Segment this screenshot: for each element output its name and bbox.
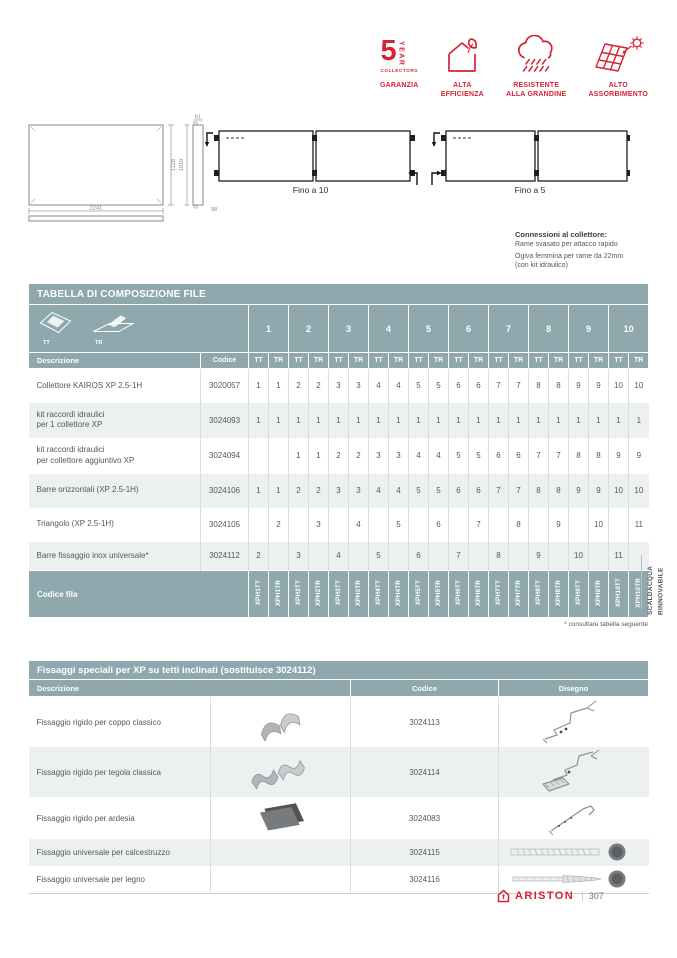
row-code-cell: XPH10TT xyxy=(609,571,629,618)
value-cell: 8 xyxy=(529,369,549,403)
value-cell: 4 xyxy=(329,542,349,571)
value-cell: 1 xyxy=(269,403,289,438)
row-code-text: XPH3TR xyxy=(355,580,362,606)
description-cell: Fissaggio universale per calcestruzzo xyxy=(29,839,211,866)
code-cell: 3024094 xyxy=(201,438,249,474)
row-code-text: XPH6TT xyxy=(455,580,462,605)
special-fixings-table: Fissaggi speciali per XP su tetti inclin… xyxy=(28,660,649,894)
value-cell: 10 xyxy=(609,474,629,508)
tt-subheader: TT xyxy=(289,353,309,369)
house-leaf-icon xyxy=(445,34,479,78)
value-cell xyxy=(549,542,569,571)
value-cell: 1 xyxy=(549,403,569,438)
dim-width: 2241 xyxy=(90,206,102,212)
row-code-text: XPH4TR xyxy=(395,580,402,606)
row-code-cell: XPH9TT xyxy=(569,571,589,618)
value-cell: 8 xyxy=(529,474,549,508)
side-label-text: SCALDACQUA RINNOVABILE xyxy=(646,555,667,615)
row-code-cell: XPH3TT xyxy=(329,571,349,618)
value-cell: 2 xyxy=(289,369,309,403)
table-row: Fissaggio rigido per coppo classico30241… xyxy=(29,697,649,748)
value-cell: 6 xyxy=(509,438,529,474)
value-cell xyxy=(569,508,589,542)
value-cell: 1 xyxy=(249,403,269,438)
tt-label: TT xyxy=(43,340,50,346)
value-cell: 3 xyxy=(289,542,309,571)
coppo-clamp-photo xyxy=(211,697,351,748)
value-cell xyxy=(309,542,329,571)
column-group-header: 6 xyxy=(449,305,489,353)
value-cell: 3 xyxy=(309,508,329,542)
column-group-header: 9 xyxy=(569,305,609,353)
column-group-header: 3 xyxy=(329,305,369,353)
value-cell: 1 xyxy=(269,369,289,403)
value-cell: 1 xyxy=(289,438,309,474)
value-cell: 1 xyxy=(309,438,329,474)
code-cell: 3024083 xyxy=(351,797,499,839)
value-cell: 10 xyxy=(629,474,649,508)
coppo-bracket-drawing xyxy=(499,697,649,748)
caption-fino-a-5: Fino a 5 xyxy=(430,185,630,195)
column-group-header: 4 xyxy=(369,305,409,353)
code-cell: 3024113 xyxy=(351,697,499,748)
table-row: Barre fissaggio inox universale*30241122… xyxy=(29,542,649,571)
description-cell: Fissaggio universale per legno xyxy=(29,866,211,894)
value-cell: 8 xyxy=(489,542,509,571)
value-cell: 1 xyxy=(409,403,429,438)
value-cell: 10 xyxy=(569,542,589,571)
brand-name: ARISTON xyxy=(515,890,574,902)
value-cell xyxy=(469,542,489,571)
row-code-text: XPH2TT xyxy=(295,580,302,605)
row-code-cell: XPH1TT xyxy=(249,571,269,618)
row-code-text: XPH8TR xyxy=(555,580,562,606)
collectors-text: COLLECTORS xyxy=(380,68,418,73)
value-cell: 5 xyxy=(449,438,469,474)
value-cell xyxy=(589,542,609,571)
tt-subheader: TT xyxy=(409,353,429,369)
table-row: Barre orizzontali (XP 2.5-1H)30241061122… xyxy=(29,474,649,508)
value-cell: 3 xyxy=(349,369,369,403)
absorption-badge: ALTO ASSORBIMENTO xyxy=(589,34,648,100)
row-code-text: XPH7TT xyxy=(495,580,502,605)
tr-flat-icon xyxy=(91,311,135,339)
value-cell: 1 xyxy=(249,474,269,508)
value-cell: 6 xyxy=(469,474,489,508)
value-cell: 4 xyxy=(389,369,409,403)
column-group-header: 1 xyxy=(249,305,289,353)
value-cell: 9 xyxy=(609,438,629,474)
tt-subheader: TT xyxy=(569,353,589,369)
row-code-row: Codice filaXPH1TTXPH1TRXPH2TTXPH2TRXPH3T… xyxy=(29,571,649,618)
value-cell: 7 xyxy=(549,438,569,474)
tt-subheader: TT xyxy=(489,353,509,369)
description-cell: kit raccordi idraulici per collettore ag… xyxy=(29,438,201,474)
row-code-text: XPH4TT xyxy=(375,580,382,605)
tt-subheader: TT xyxy=(369,353,389,369)
code-cell: 3024093 xyxy=(201,403,249,438)
five-number: 5 xyxy=(380,39,396,64)
column-group-header: 10 xyxy=(609,305,649,353)
photo-cell-empty xyxy=(211,839,351,866)
tt-subheader: TT xyxy=(609,353,629,369)
code-cell: 3024112 xyxy=(201,542,249,571)
value-cell: 9 xyxy=(629,438,649,474)
code-cell: 3024115 xyxy=(351,839,499,866)
table-row: Fissaggio rigido per tegola classica3024… xyxy=(29,747,649,797)
row-code-text: XPH1TR xyxy=(275,580,282,606)
value-cell: 6 xyxy=(429,508,449,542)
value-cell: 1 xyxy=(369,403,389,438)
row-code-text: XPH1TT xyxy=(255,580,262,605)
efficiency-badge: ALTA EFFICIENZA xyxy=(441,34,484,100)
connections-title: Connessioni al collettore: xyxy=(515,230,655,239)
value-cell: 9 xyxy=(589,474,609,508)
row-code-text: XPH7TR xyxy=(515,580,522,606)
ardesia-hook-drawing xyxy=(499,797,649,839)
code-cell: 3024106 xyxy=(201,474,249,508)
code-header: Codice xyxy=(351,680,499,697)
connections-line-2: Ogiva femmina per rame da 22mm (con kit … xyxy=(515,253,655,271)
value-cell: 3 xyxy=(389,438,409,474)
value-cell xyxy=(349,542,369,571)
value-cell: 11 xyxy=(609,542,629,571)
row-code-text: XPH3TT xyxy=(335,580,342,605)
value-cell: 1 xyxy=(529,403,549,438)
table-footnote: * consultare tabella seguente xyxy=(28,621,648,628)
value-cell: 6 xyxy=(469,369,489,403)
table-row: Fissaggio universale per calcestruzzo302… xyxy=(29,839,649,866)
tr-subheader: TR xyxy=(389,353,409,369)
row-code-cell: XPH4TR xyxy=(389,571,409,618)
value-cell xyxy=(509,542,529,571)
description-header: Descrizione xyxy=(29,680,351,697)
row-code-text: XPH9TR xyxy=(595,580,602,606)
value-cell: 10 xyxy=(609,369,629,403)
row-code-cell: XPH2TT xyxy=(289,571,309,618)
value-cell xyxy=(449,508,469,542)
value-cell: 1 xyxy=(509,403,529,438)
value-cell: 2 xyxy=(269,508,289,542)
description-cell: Fissaggio rigido per ardesia xyxy=(29,797,211,839)
special-fixings-section: Fissaggi speciali per XP su tetti inclin… xyxy=(28,660,648,894)
row-drawing-fino-a-10 xyxy=(203,125,418,194)
badge-label: ALTA EFFICIENZA xyxy=(441,82,484,100)
value-cell xyxy=(389,542,409,571)
row-code-text: XPH2TR xyxy=(315,580,322,606)
ardesia-plate-photo xyxy=(211,797,351,839)
value-cell: 7 xyxy=(489,369,509,403)
value-cell: 3 xyxy=(329,474,349,508)
value-cell: 10 xyxy=(589,508,609,542)
page-footer: ARISTON | 307 xyxy=(497,889,604,903)
value-cell xyxy=(429,542,449,571)
code-cell: 3020057 xyxy=(201,369,249,403)
ariston-house-icon xyxy=(497,889,510,903)
tt-subheader: TT xyxy=(329,353,349,369)
value-cell: 8 xyxy=(509,508,529,542)
value-cell: 1 xyxy=(449,403,469,438)
dim-side-top: 61 xyxy=(195,115,201,121)
value-cell: 7 xyxy=(509,369,529,403)
code-header: Codice xyxy=(201,353,249,369)
description-header: Descrizione xyxy=(29,353,201,369)
connections-note: Connessioni al collettore: Rame svasato … xyxy=(515,230,655,273)
roof-type-icons: TTTR xyxy=(29,305,249,353)
value-cell: 8 xyxy=(549,474,569,508)
description-cell: kit raccordi idraulici per 1 collettore … xyxy=(29,403,201,438)
value-cell: 3 xyxy=(349,474,369,508)
chapter-side-label: SCALDACQUA RINNOVABILE xyxy=(641,555,667,615)
hail-cloud-icon xyxy=(513,34,559,78)
value-cell: 5 xyxy=(409,369,429,403)
tr-subheader: TR xyxy=(349,353,369,369)
catalog-page: 5 YEAR COLLECTORS GARANZIA ALTA EFFICIEN… xyxy=(0,0,677,958)
value-cell: 8 xyxy=(589,438,609,474)
description-cell: Fissaggio rigido per coppo classico xyxy=(29,697,211,748)
threaded-rod-drawing xyxy=(499,839,649,866)
row-code-cell: XPH6TT xyxy=(449,571,469,618)
tr-subheader: TR xyxy=(309,353,329,369)
value-cell: 2 xyxy=(349,438,369,474)
value-cell: 2 xyxy=(249,542,269,571)
value-cell: 9 xyxy=(529,542,549,571)
row-code-cell: XPH9TR xyxy=(589,571,609,618)
value-cell: 7 xyxy=(469,508,489,542)
connections-line-1: Rame svasato per attacco rapido xyxy=(515,241,655,250)
tt-subheader: TT xyxy=(249,353,269,369)
tr-subheader: TR xyxy=(629,353,649,369)
value-cell: 4 xyxy=(369,474,389,508)
value-cell: 3 xyxy=(369,438,389,474)
certification-badges: 5 YEAR COLLECTORS GARANZIA ALTA EFFICIEN… xyxy=(380,34,648,100)
value-cell: 1 xyxy=(609,403,629,438)
year-text: YEAR xyxy=(398,41,405,66)
tegola-clamp-photo xyxy=(211,747,351,797)
value-cell: 8 xyxy=(569,438,589,474)
value-cell: 8 xyxy=(549,369,569,403)
value-cell: 5 xyxy=(409,474,429,508)
value-cell: 1 xyxy=(309,403,329,438)
row-code-label: Codice fila xyxy=(29,571,249,618)
value-cell: 1 xyxy=(629,403,649,438)
value-cell xyxy=(329,508,349,542)
row-code-text: XPH8TT xyxy=(535,580,542,605)
value-cell: 1 xyxy=(249,369,269,403)
row-code-cell: XPH4TT xyxy=(369,571,389,618)
badge-label: RESISTENTE ALLA GRANDINE xyxy=(506,82,566,100)
tr-subheader: TR xyxy=(509,353,529,369)
table-row: kit raccordi idraulici per 1 collettore … xyxy=(29,403,649,438)
table1-title: TABELLA DI COMPOSIZIONE FILE xyxy=(29,284,649,305)
code-cell: 3024114 xyxy=(351,747,499,797)
value-cell: 1 xyxy=(429,403,449,438)
description-cell: Collettore KAIROS XP 2.5-1H xyxy=(29,369,201,403)
description-cell: Triangolo (XP 2.5-1H) xyxy=(29,508,201,542)
table2-title: Fissaggi speciali per XP su tetti inclin… xyxy=(29,661,649,680)
row-code-cell: XPH1TR xyxy=(269,571,289,618)
column-group-header: 7 xyxy=(489,305,529,353)
row-code-text: XPH9TT xyxy=(575,580,582,605)
code-cell: 3024116 xyxy=(351,866,499,894)
value-cell xyxy=(269,438,289,474)
value-cell: 5 xyxy=(469,438,489,474)
row-code-cell: XPH2TR xyxy=(309,571,329,618)
value-cell: 6 xyxy=(449,369,469,403)
value-cell: 6 xyxy=(409,542,429,571)
value-cell: 1 xyxy=(269,474,289,508)
value-cell: 5 xyxy=(389,508,409,542)
five-year-collectors-mark: 5 YEAR COLLECTORS xyxy=(380,34,418,78)
badge-label: ALTO ASSORBIMENTO xyxy=(589,82,648,100)
table-row: Fissaggio rigido per ardesia3024083 xyxy=(29,797,649,839)
solar-absorb-icon xyxy=(590,34,646,78)
row-code-text: XPH5TT xyxy=(415,580,422,605)
tr-subheader: TR xyxy=(269,353,289,369)
warranty-badge: 5 YEAR COLLECTORS GARANZIA xyxy=(380,34,419,100)
value-cell: 7 xyxy=(509,474,529,508)
value-cell xyxy=(249,438,269,474)
value-cell: 1 xyxy=(349,403,369,438)
tr-subheader: TR xyxy=(589,353,609,369)
row-code-text: XPH10TT xyxy=(615,578,622,607)
value-cell: 9 xyxy=(569,474,589,508)
value-cell: 6 xyxy=(449,474,469,508)
photo-cell-empty xyxy=(211,866,351,894)
row-code-cell: XPH8TR xyxy=(549,571,569,618)
row-code-text: XPH6TR xyxy=(475,580,482,606)
value-cell: 4 xyxy=(389,474,409,508)
row-code-cell: XPH5TT xyxy=(409,571,429,618)
row-code-text: XPH5TR xyxy=(435,580,442,606)
description-cell: Fissaggio rigido per tegola classica xyxy=(29,747,211,797)
column-group-header: 2 xyxy=(289,305,329,353)
value-cell: 1 xyxy=(589,403,609,438)
table-row: kit raccordi idraulici per collettore ag… xyxy=(29,438,649,474)
value-cell xyxy=(409,508,429,542)
tt-roof-icon xyxy=(39,311,77,339)
value-cell: 11 xyxy=(629,508,649,542)
value-cell xyxy=(529,508,549,542)
value-cell: 2 xyxy=(309,474,329,508)
value-cell: 9 xyxy=(569,369,589,403)
value-cell: 2 xyxy=(329,438,349,474)
row-code-cell: XPH6TR xyxy=(469,571,489,618)
row-code-cell: XPH7TR xyxy=(509,571,529,618)
value-cell xyxy=(609,508,629,542)
column-group-header: 8 xyxy=(529,305,569,353)
dim-side-height: 1010 xyxy=(179,159,185,171)
page-number: 307 xyxy=(589,891,604,901)
value-cell: 1 xyxy=(329,403,349,438)
hail-resistance-badge: RESISTENTE ALLA GRANDINE xyxy=(506,34,566,100)
value-cell: 1 xyxy=(389,403,409,438)
value-cell: 5 xyxy=(369,542,389,571)
value-cell: 5 xyxy=(429,369,449,403)
value-cell: 2 xyxy=(289,474,309,508)
composition-table: TABELLA DI COMPOSIZIONE FILETTTR12345678… xyxy=(28,283,649,618)
side-label-rule xyxy=(641,555,642,609)
value-cell xyxy=(369,508,389,542)
tegola-bracket-drawing xyxy=(499,747,649,797)
value-cell: 4 xyxy=(429,438,449,474)
value-cell: 9 xyxy=(589,369,609,403)
value-cell: 7 xyxy=(449,542,469,571)
row-code-cell: XPH8TT xyxy=(529,571,549,618)
row-code-cell: XPH3TR xyxy=(349,571,369,618)
value-cell: 10 xyxy=(629,369,649,403)
description-cell: Barre fissaggio inox universale* xyxy=(29,542,201,571)
dim-side-depth: 98 xyxy=(211,207,217,213)
caption-fino-a-10: Fino a 10 xyxy=(203,185,418,195)
footer-separator: | xyxy=(581,891,584,902)
value-cell: 1 xyxy=(289,403,309,438)
value-cell: 4 xyxy=(349,508,369,542)
collector-dimension-drawing: 2241 1128 61 1010 98 xyxy=(25,113,225,233)
value-cell xyxy=(289,508,309,542)
row-code-cell: XPH7TT xyxy=(489,571,509,618)
value-cell: 2 xyxy=(309,369,329,403)
tt-subheader: TT xyxy=(529,353,549,369)
tr-subheader: TR xyxy=(549,353,569,369)
value-cell: 5 xyxy=(429,474,449,508)
dim-height: 1128 xyxy=(171,159,177,171)
value-cell: 1 xyxy=(469,403,489,438)
value-cell: 7 xyxy=(529,438,549,474)
badge-label: GARANZIA xyxy=(380,82,419,91)
tr-subheader: TR xyxy=(469,353,489,369)
value-cell: 1 xyxy=(569,403,589,438)
tr-subheader: TR xyxy=(429,353,449,369)
row-drawing-fino-a-5 xyxy=(430,125,630,194)
tt-subheader: TT xyxy=(449,353,469,369)
description-cell: Barre orizzontali (XP 2.5-1H) xyxy=(29,474,201,508)
row-code-cell: XPH5TR xyxy=(429,571,449,618)
value-cell: 1 xyxy=(489,403,509,438)
table-row: Triangolo (XP 2.5-1H)3024105234567891011 xyxy=(29,508,649,542)
drawing-header: Disegno xyxy=(499,680,649,697)
value-cell xyxy=(489,508,509,542)
value-cell: 7 xyxy=(489,474,509,508)
value-cell: 9 xyxy=(549,508,569,542)
value-cell xyxy=(249,508,269,542)
value-cell: 4 xyxy=(369,369,389,403)
tr-label: TR xyxy=(95,340,102,346)
value-cell xyxy=(269,542,289,571)
value-cell: 3 xyxy=(329,369,349,403)
value-cell: 6 xyxy=(489,438,509,474)
composition-table-section: TABELLA DI COMPOSIZIONE FILETTTR12345678… xyxy=(28,283,648,628)
value-cell: 4 xyxy=(409,438,429,474)
column-group-header: 5 xyxy=(409,305,449,353)
code-cell: 3024105 xyxy=(201,508,249,542)
table-row: Collettore KAIROS XP 2.5-1H3020057112233… xyxy=(29,369,649,403)
